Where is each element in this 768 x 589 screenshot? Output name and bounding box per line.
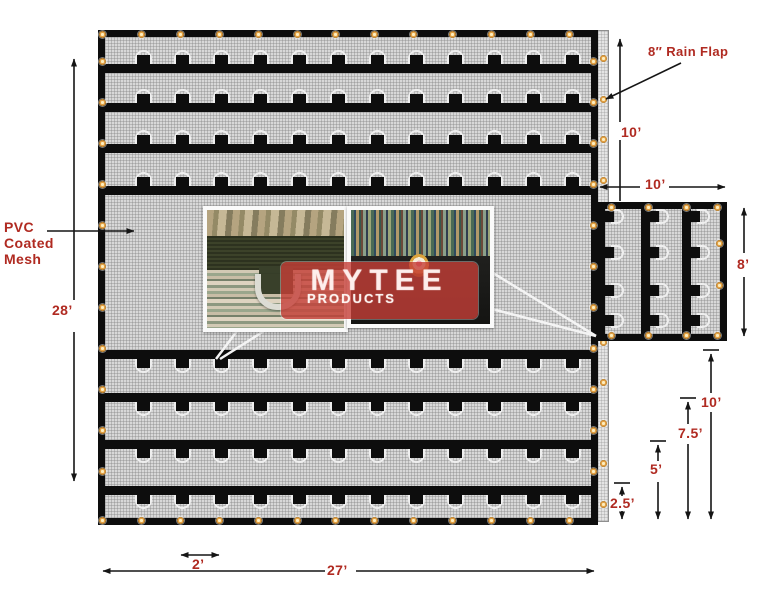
grommet-icon — [683, 332, 690, 339]
grommet-icon — [600, 460, 607, 467]
grommet-icon — [527, 517, 534, 524]
dim-label-2ft: 2’ — [192, 556, 204, 572]
d-ring-tab — [605, 247, 614, 258]
d-ring-tab — [691, 247, 700, 258]
d-ring-tab — [566, 177, 579, 186]
grommet-icon — [177, 31, 184, 38]
grommet-icon — [600, 177, 607, 184]
grommet-icon — [138, 31, 145, 38]
d-ring-tab — [254, 495, 267, 504]
d-ring-tab — [488, 55, 501, 64]
dim-label-8ft: 8’ — [737, 256, 749, 272]
d-ring-tab — [293, 177, 306, 186]
d-ring-tab — [254, 449, 267, 458]
d-ring-tab — [215, 449, 228, 458]
d-ring-tab — [410, 177, 423, 186]
d-ring-tab — [650, 315, 659, 326]
d-ring-tab — [527, 177, 540, 186]
d-ring-tab — [332, 135, 345, 144]
d-ring-tab — [566, 402, 579, 411]
grommet-icon — [590, 263, 597, 270]
d-ring-tab — [293, 94, 306, 103]
grommet-icon — [449, 517, 456, 524]
grommet-icon — [600, 501, 607, 508]
d-ring-tab — [137, 495, 150, 504]
dim-label-10ft-ladder: 10’ — [701, 394, 722, 410]
d-ring-tab — [293, 495, 306, 504]
d-ring-tab — [215, 402, 228, 411]
grommet-icon — [600, 55, 607, 62]
photo-mesh-edge — [207, 210, 344, 236]
d-ring-tab — [410, 135, 423, 144]
d-ring-tab — [176, 359, 189, 368]
dim-label-10ft-flap: 10’ — [621, 124, 642, 140]
d-ring-tab — [488, 177, 501, 186]
grommet-icon — [371, 31, 378, 38]
d-ring-tab — [410, 94, 423, 103]
grommet-icon — [608, 204, 615, 211]
d-ring-tab — [691, 211, 700, 222]
batten-bar — [105, 64, 591, 73]
batten-bar — [105, 350, 591, 359]
d-ring-tab — [137, 55, 150, 64]
grommet-icon — [683, 204, 690, 211]
batten-bar — [105, 144, 591, 153]
d-ring-tab — [371, 359, 384, 368]
photo-striped-mesh — [351, 210, 490, 256]
grommet-icon — [332, 517, 339, 524]
grommet-icon — [99, 304, 106, 311]
grommet-icon — [216, 517, 223, 524]
d-ring-tab — [254, 177, 267, 186]
d-ring-tab — [254, 55, 267, 64]
batten-bar — [105, 393, 591, 402]
d-ring-tab — [332, 359, 345, 368]
d-ring-tab — [332, 55, 345, 64]
grommet-icon — [600, 136, 607, 143]
d-ring-tab — [176, 55, 189, 64]
d-ring-tab — [137, 449, 150, 458]
dim-label-10ft-side-width: 10’ — [645, 176, 666, 192]
grommet-icon — [645, 204, 652, 211]
d-ring-tab — [254, 135, 267, 144]
grommet-icon — [294, 31, 301, 38]
grommet-icon — [716, 240, 723, 247]
dim-label-5ft: 5’ — [650, 461, 662, 477]
diagram-canvas: MYTEE PRODUCTS PVC Coated Mesh 28’ 8″ Ra… — [0, 0, 768, 589]
d-ring-tab — [137, 94, 150, 103]
d-ring-tab — [371, 495, 384, 504]
d-ring-tab — [449, 359, 462, 368]
d-ring-tab — [176, 495, 189, 504]
d-ring-tab — [371, 94, 384, 103]
grommet-icon — [590, 468, 597, 475]
pvc-mesh-label: PVC Coated Mesh — [4, 219, 54, 267]
grommet-icon — [600, 379, 607, 386]
d-ring-tab — [254, 94, 267, 103]
grommet-icon — [566, 517, 573, 524]
d-ring-tab — [176, 177, 189, 186]
grommet-icon — [99, 58, 106, 65]
d-ring-tab — [488, 94, 501, 103]
grommet-icon — [216, 31, 223, 38]
grommet-icon — [99, 140, 106, 147]
grommet-icon — [99, 222, 106, 229]
grommet-icon — [488, 517, 495, 524]
pvc-mesh-label-line1: PVC — [4, 219, 54, 235]
d-ring-tab — [527, 359, 540, 368]
grommet-icon — [714, 204, 721, 211]
d-ring-tab — [410, 55, 423, 64]
d-ring-tab — [371, 177, 384, 186]
d-ring-tab — [449, 55, 462, 64]
grommet-icon — [716, 282, 723, 289]
grommet-icon — [255, 31, 262, 38]
grommet-icon — [177, 517, 184, 524]
d-ring-tab — [691, 315, 700, 326]
d-ring-tab — [527, 495, 540, 504]
dim-label-2-5ft: 2.5’ — [610, 495, 635, 511]
d-ring-tab — [449, 177, 462, 186]
d-ring-tab — [293, 55, 306, 64]
d-ring-tab — [527, 449, 540, 458]
grommet-icon — [99, 263, 106, 270]
d-ring-tab — [371, 55, 384, 64]
d-ring-tab — [488, 449, 501, 458]
grommet-icon — [371, 517, 378, 524]
d-ring-tab — [332, 449, 345, 458]
grommet-icon — [294, 517, 301, 524]
grommet-icon — [332, 31, 339, 38]
d-ring-tab — [176, 449, 189, 458]
d-ring-tab — [137, 177, 150, 186]
grommet-icon — [600, 96, 607, 103]
d-ring-tab — [137, 359, 150, 368]
d-ring-tab — [215, 55, 228, 64]
d-ring-tab — [176, 402, 189, 411]
d-ring-tab — [605, 211, 614, 222]
d-ring-tab — [527, 135, 540, 144]
d-ring-tab — [449, 135, 462, 144]
d-ring-tab — [410, 359, 423, 368]
d-ring-tab — [449, 495, 462, 504]
vertical-batten-bar — [641, 209, 650, 334]
grommet-icon — [590, 140, 597, 147]
d-ring-tab — [410, 402, 423, 411]
d-ring-tab — [691, 285, 700, 296]
dim-label-7-5ft: 7.5’ — [678, 425, 703, 441]
d-ring-tab — [371, 449, 384, 458]
d-ring-tab — [293, 135, 306, 144]
grommet-icon — [449, 31, 456, 38]
grommet-icon — [99, 468, 106, 475]
grommet-icon — [645, 332, 652, 339]
grommet-icon — [590, 304, 597, 311]
rain-flap-label: 8″ Rain Flap — [648, 44, 728, 59]
grommet-icon — [99, 345, 106, 352]
d-ring-tab — [410, 449, 423, 458]
grommet-icon — [608, 332, 615, 339]
grommet-icon — [410, 517, 417, 524]
d-ring-tab — [488, 495, 501, 504]
d-ring-tab — [566, 449, 579, 458]
grommet-icon — [488, 31, 495, 38]
d-ring-tab — [332, 402, 345, 411]
mytee-logo: MYTEE PRODUCTS — [281, 262, 478, 319]
d-ring-tab — [566, 135, 579, 144]
d-ring-tab — [488, 402, 501, 411]
grommet-icon — [410, 31, 417, 38]
d-ring-tab — [488, 359, 501, 368]
side-tarp-panel — [598, 202, 727, 341]
grommet-icon — [590, 181, 597, 188]
d-ring-tab — [410, 495, 423, 504]
d-ring-tab — [650, 247, 659, 258]
d-ring-tab — [566, 495, 579, 504]
grommet-icon — [99, 517, 106, 524]
d-ring-tab — [293, 449, 306, 458]
d-ring-tab — [137, 135, 150, 144]
d-ring-tab — [293, 359, 306, 368]
d-ring-tab — [566, 55, 579, 64]
grommet-icon — [590, 427, 597, 434]
grommet-icon — [99, 427, 106, 434]
d-ring-tab — [293, 402, 306, 411]
grommet-icon — [255, 517, 262, 524]
grommet-icon — [590, 58, 597, 65]
d-ring-tab — [449, 402, 462, 411]
d-ring-tab — [527, 94, 540, 103]
batten-bar — [105, 186, 591, 195]
grommet-icon — [99, 99, 106, 106]
d-ring-tab — [566, 359, 579, 368]
d-ring-tab — [371, 135, 384, 144]
grommet-icon — [590, 345, 597, 352]
batten-bar — [105, 103, 591, 112]
d-ring-tab — [254, 359, 267, 368]
grommet-icon — [527, 31, 534, 38]
grommet-icon — [138, 517, 145, 524]
d-ring-tab — [650, 285, 659, 296]
dim-label-27ft: 27’ — [327, 562, 348, 578]
d-ring-tab — [215, 359, 228, 368]
vertical-batten-bar — [682, 209, 691, 334]
d-ring-tab — [176, 94, 189, 103]
pvc-mesh-label-line2: Coated — [4, 235, 54, 251]
d-ring-tab — [332, 177, 345, 186]
grommet-icon — [566, 31, 573, 38]
grommet-icon — [590, 222, 597, 229]
pvc-mesh-label-line3: Mesh — [4, 251, 54, 267]
batten-bar — [105, 486, 591, 495]
d-ring-tab — [215, 177, 228, 186]
batten-bar — [105, 440, 591, 449]
grommet-icon — [99, 31, 106, 38]
d-ring-tab — [527, 55, 540, 64]
d-ring-tab — [176, 135, 189, 144]
d-ring-tab — [605, 285, 614, 296]
grommet-icon — [590, 99, 597, 106]
d-ring-tab — [449, 449, 462, 458]
grommet-icon — [99, 181, 106, 188]
d-ring-tab — [488, 135, 501, 144]
grommet-icon — [99, 386, 106, 393]
d-ring-tab — [650, 211, 659, 222]
d-ring-tab — [566, 94, 579, 103]
d-ring-tab — [371, 402, 384, 411]
d-ring-tab — [527, 402, 540, 411]
d-ring-tab — [215, 135, 228, 144]
d-ring-tab — [137, 402, 150, 411]
dim-label-28ft: 28’ — [52, 302, 73, 318]
grommet-icon — [714, 332, 721, 339]
grommet-icon — [590, 386, 597, 393]
grommet-icon — [600, 420, 607, 427]
d-ring-tab — [215, 94, 228, 103]
logo-subtitle: PRODUCTS — [307, 291, 478, 306]
d-ring-tab — [332, 495, 345, 504]
d-ring-tab — [449, 94, 462, 103]
d-ring-tab — [254, 402, 267, 411]
d-ring-tab — [332, 94, 345, 103]
d-ring-tab — [605, 315, 614, 326]
d-ring-tab — [215, 495, 228, 504]
